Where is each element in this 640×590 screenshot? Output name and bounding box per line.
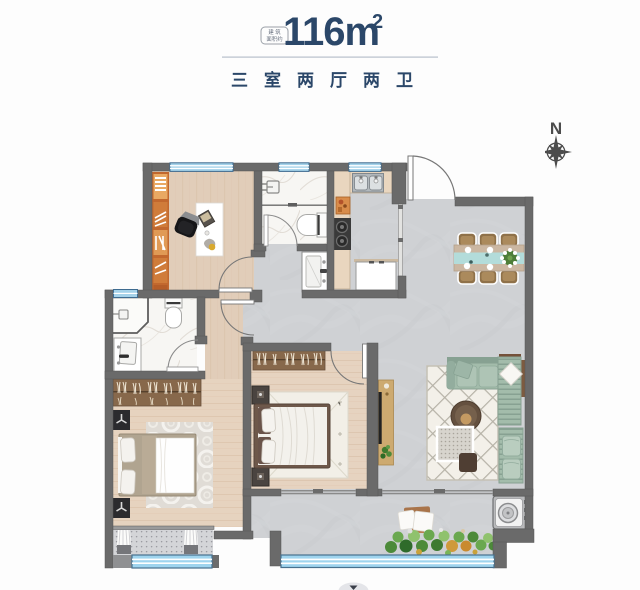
svg-text:三室两厅两卫: 三室两厅两卫 <box>231 70 429 90</box>
svg-text:建 筑: 建 筑 <box>268 28 281 36</box>
svg-text:面积约: 面积约 <box>266 35 282 43</box>
svg-text:2: 2 <box>372 11 383 33</box>
svg-text:116m: 116m <box>283 10 379 54</box>
